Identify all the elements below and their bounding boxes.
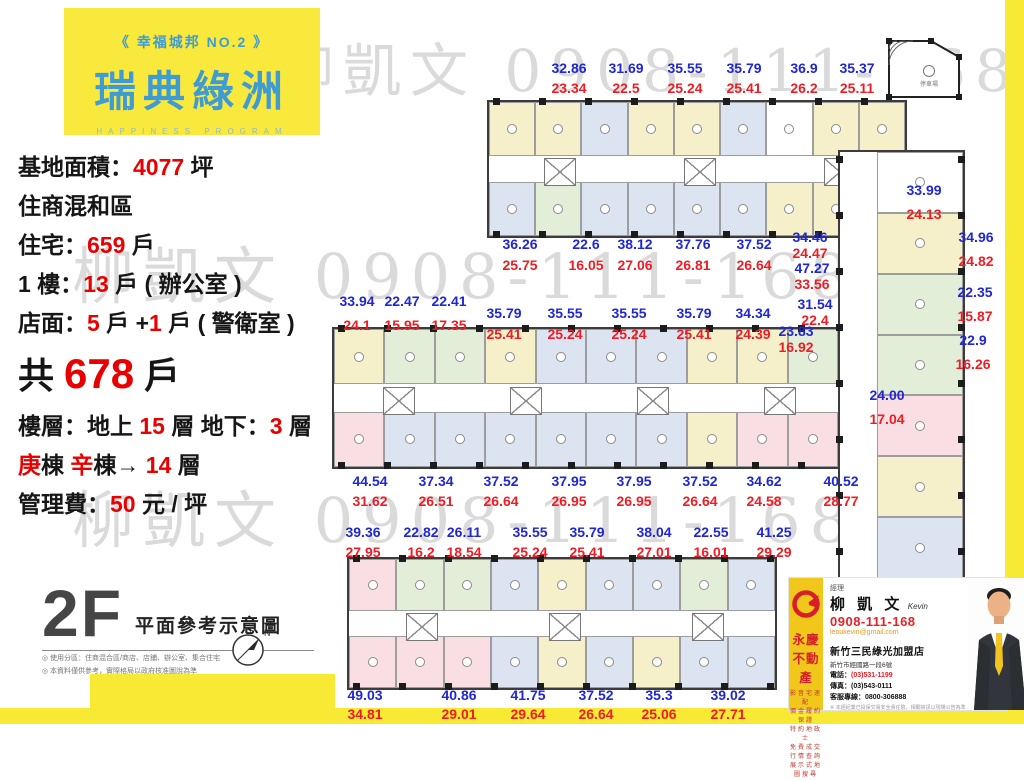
unit-area-label: 44.5431.62 [352, 474, 387, 509]
floor-plan-unit [720, 182, 766, 236]
floor-plan-unit [687, 412, 737, 467]
structural-column [539, 231, 546, 238]
unit-area-label: 49.0334.81 [347, 688, 382, 722]
floor-plan-unit [538, 636, 585, 688]
unit-number-mark [692, 124, 702, 134]
unit-area-label: 37.9526.95 [551, 474, 586, 509]
unit-number-mark [556, 352, 566, 362]
structural-column [861, 98, 868, 105]
unit-area-label: 35.5525.24 [547, 306, 582, 342]
floor-plan-unit [633, 636, 680, 688]
structural-column [585, 98, 592, 105]
unit-number-mark [746, 657, 756, 667]
structural-column [629, 683, 636, 690]
structural-column [384, 462, 391, 469]
logo-tagline: 《 幸福城邦 NO.2 》 [64, 32, 320, 52]
floor-plan-unit [674, 182, 720, 236]
unit-number-mark [699, 657, 709, 667]
store-tel: 電話：(03)531-1199 [830, 670, 966, 680]
unit-area-label: 35.7925.41 [726, 61, 761, 96]
structural-column [476, 462, 483, 469]
unit-area-label: 36.926.2 [790, 61, 817, 96]
unit-number-mark [505, 434, 515, 444]
structural-column [836, 436, 843, 443]
structural-column [798, 462, 805, 469]
unit-number-mark [600, 204, 610, 214]
unit-number-mark [652, 657, 662, 667]
unit-area-label: 34.6224.58 [746, 474, 781, 509]
unit-number-mark [604, 580, 614, 590]
frame-bottom-left [90, 674, 335, 724]
unit-area-label: 24.0017.04 [869, 388, 904, 427]
unit-number-mark [738, 124, 748, 134]
unit-area-label: 33.9424.1 [339, 294, 374, 333]
unit-area-label: 35.3725.11 [839, 61, 874, 96]
unit-number-mark [707, 434, 717, 444]
unit-area-label: 37.5226.64 [483, 474, 518, 509]
brand-feature: 展示式地圖搜尋 [789, 762, 823, 780]
info-line: 1 樓：13 戶 ( 辦公室 ) [18, 265, 312, 304]
structural-column [338, 462, 345, 469]
floor-plan-unit [384, 329, 434, 384]
parking-label: 停車場 [920, 80, 938, 88]
logo-title: 瑞典綠洲 [64, 58, 320, 119]
info-line: 樓層：地上 15 層 地下：3 層 [18, 407, 312, 446]
structural-column [660, 462, 667, 469]
unit-number-mark [556, 434, 566, 444]
unit-area-label: 22.916.26 [955, 333, 990, 372]
unit-area-label: 34.4624.47 [792, 230, 827, 261]
floor-note: ◎ 使用分區：住商混合區/商店、店鋪、辦公室、集合住宅 [42, 654, 332, 664]
unit-area-label: 38.0427.01 [636, 525, 671, 560]
unit-number-mark [557, 657, 567, 667]
unit-area-label: 32.8623.34 [551, 61, 586, 96]
info-line: 庚棟 辛棟→ 14 層 [18, 446, 312, 485]
unit-number-mark [657, 352, 667, 362]
agent-photo [968, 578, 1024, 710]
structural-column [836, 380, 843, 387]
floor-plan-unit [877, 274, 963, 335]
unit-area-label: 41.7529.64 [510, 688, 545, 722]
unit-area-label: 33.9924.13 [906, 183, 941, 222]
info-line: 管理費：50 元 / 坪 [18, 485, 312, 524]
floor-plan-unit [535, 182, 581, 236]
floor-plan-unit [581, 102, 627, 156]
unit-number-mark [877, 124, 887, 134]
floor-plan-unit [444, 559, 491, 611]
floor-plan-unit [435, 329, 485, 384]
floor-plan-unit [349, 636, 396, 688]
structural-column [958, 548, 965, 555]
structural-column [723, 231, 730, 238]
unit-number-mark [915, 360, 925, 370]
structural-column [522, 325, 529, 332]
parking-ramp-plan: 停車場 [882, 30, 964, 104]
floor-plan-unit [491, 636, 538, 688]
structural-column [491, 555, 498, 562]
structural-column [677, 98, 684, 105]
floor-plan-unit [680, 636, 727, 688]
store-fax: 傳真：(03)543-0111 [830, 681, 966, 691]
structural-column [958, 156, 965, 163]
unit-number-mark [510, 580, 520, 590]
unit-number-mark [915, 238, 925, 248]
project-logo: 《 幸福城邦 NO.2 》 瑞典綠洲 HAPPINESS PROGRAM [64, 8, 320, 135]
info-line: 基地面積：4077 坪 [18, 148, 312, 187]
unit-number-mark [455, 352, 465, 362]
structural-column [493, 231, 500, 238]
elevator-core [510, 387, 542, 415]
info-line: 住宅：659 戶 [18, 226, 312, 265]
structural-column [767, 683, 774, 690]
floor-plan-unit [720, 102, 766, 156]
unit-area-label: 37.3426.51 [418, 474, 453, 509]
unit-number-mark [657, 434, 667, 444]
structural-column [958, 212, 965, 219]
structural-column [493, 98, 500, 105]
unit-number-mark [915, 421, 925, 431]
floor-plan-unit [538, 559, 585, 611]
elevator-core [549, 613, 581, 641]
agent-name-en: Kevin [908, 602, 928, 611]
compass-north-label: N [264, 628, 271, 638]
structural-column [660, 325, 667, 332]
unit-area-label: 35.5525.24 [611, 306, 646, 342]
unit-area-label: 35.7925.41 [486, 306, 521, 342]
unit-area-label: 39.0227.71 [710, 688, 745, 722]
yongching-logo-icon [789, 587, 823, 621]
unit-number-mark [738, 204, 748, 214]
unit-number-mark [692, 204, 702, 214]
unit-area-label: 22.5516.01 [693, 525, 728, 560]
unit-area-label: 35.5525.24 [667, 61, 702, 96]
unit-number-mark [553, 124, 563, 134]
unit-area-label: 40.5228.77 [823, 474, 858, 509]
unit-area-label: 26.1118.54 [446, 525, 481, 560]
structural-column [958, 380, 965, 387]
floor-plan-unit [737, 412, 787, 467]
unit-number-mark [757, 352, 767, 362]
unit-area-label: 35.5525.24 [512, 525, 547, 560]
floor-number: 2F [42, 582, 123, 644]
floor-label-block: 2F 平面參考示意圖 ◎ 使用分區：住商混合區/商店、店鋪、辦公室、集合住宅◎ … [42, 582, 332, 677]
floor-plan-unit [334, 329, 384, 384]
unit-area-label: 37.5226.64 [682, 474, 717, 509]
structural-column [723, 98, 730, 105]
structural-column [815, 98, 822, 105]
brand-feature: 特約地政士 [789, 726, 823, 744]
unit-number-mark [600, 124, 610, 134]
structural-column [539, 98, 546, 105]
agent-business-card: 永慶不動產 影音宅速配價金履約保證特約地政士免費成交行情查詢展示式地圖搜尋 經理… [788, 577, 1008, 711]
structural-column [675, 555, 682, 562]
structural-column [631, 98, 638, 105]
agent-name: 柳 凱 文 [830, 596, 903, 613]
unit-number-mark [553, 204, 563, 214]
agent-photo-image [968, 578, 1024, 710]
structural-column [836, 268, 843, 275]
unit-area-label: 37.7626.81 [675, 237, 710, 273]
structural-column [629, 555, 636, 562]
unit-area-label: 35.7925.41 [569, 525, 604, 560]
unit-number-mark [606, 352, 616, 362]
info-line: 住商混和區 [18, 187, 312, 226]
unit-number-mark [557, 580, 567, 590]
brand-panel: 永慶不動產 影音宅速配價金履約保證特約地政士免費成交行情查詢展示式地圖搜尋 [789, 578, 823, 710]
structural-column [614, 462, 621, 469]
unit-number-mark [757, 434, 767, 444]
structural-column [958, 268, 965, 275]
unit-area-label: 31.6922.5 [608, 61, 643, 96]
unit-area-label: 41.2529.29 [756, 525, 791, 560]
card-fineprint: ※ 本經紀業已投保交易安全責任險，相關資訊以現場公告為準 [830, 704, 966, 711]
floor-plan-unit [536, 412, 586, 467]
elevator-core [383, 387, 415, 415]
structural-column [491, 683, 498, 690]
floor-plan-unit [444, 636, 491, 688]
elevator-core [684, 158, 716, 186]
structural-column [836, 548, 843, 555]
floor-plan [347, 557, 777, 690]
unit-number-mark [784, 204, 794, 214]
unit-number-mark [510, 657, 520, 667]
divider [42, 650, 314, 651]
store-name: 新竹三民綠光加盟店 [830, 643, 966, 658]
unit-number-mark [462, 580, 472, 590]
floor-plan-unit [766, 102, 812, 156]
floor-plan-unit [581, 182, 627, 236]
unit-number-mark [354, 352, 364, 362]
structural-column [568, 462, 575, 469]
unit-number-mark [746, 580, 756, 590]
unit-number-mark [606, 434, 616, 444]
unit-area-label: 47.2733.56 [794, 261, 829, 292]
compass-icon: N [228, 626, 272, 670]
unit-number-mark [507, 124, 517, 134]
floor-plan-unit [349, 559, 396, 611]
structural-column [836, 324, 843, 331]
store-address: 新竹市經國路一段6號 [830, 659, 966, 669]
floor-plan-unit [396, 636, 443, 688]
floor-plan-unit [680, 559, 727, 611]
elevator-core [637, 387, 669, 415]
floor-plan-unit [489, 102, 535, 156]
unit-number-mark [455, 434, 465, 444]
floor-plan [838, 150, 965, 580]
floor-plan-unit [586, 636, 633, 688]
floor-plan-unit [435, 412, 485, 467]
info-line: 店面：5 戶 +1 戶 ( 警衛室 ) [18, 304, 312, 343]
structural-column [522, 462, 529, 469]
unit-number-mark [507, 204, 517, 214]
floor-plan-unit [535, 102, 581, 156]
info-line: 共 678 戶 [18, 343, 312, 407]
floor-plan-unit [674, 102, 720, 156]
logo-subtitle: HAPPINESS PROGRAM [64, 127, 320, 136]
elevator-core [406, 613, 438, 641]
store-hotline: 客服專線：0800-306888 [830, 692, 966, 702]
floor-plan-unit [384, 412, 434, 467]
floor-plan-unit [633, 559, 680, 611]
floor-plan-unit [813, 102, 859, 156]
unit-area-label: 38.1227.06 [617, 237, 652, 273]
unit-area-label: 22.616.05 [568, 237, 603, 273]
structural-column [476, 325, 483, 332]
elevator-core [764, 387, 796, 415]
brand-feature: 免費成交行情查詢 [789, 744, 823, 762]
unit-number-mark [831, 124, 841, 134]
unit-number-mark [354, 434, 364, 444]
agent-phone: 0908-111-168 [830, 614, 966, 629]
floor-plan-unit [877, 456, 963, 517]
floor-plan-unit [396, 559, 443, 611]
structural-column [958, 324, 965, 331]
unit-number-mark [415, 580, 425, 590]
structural-column [706, 462, 713, 469]
structural-column [399, 683, 406, 690]
floor-plan-unit [788, 412, 838, 467]
unit-area-label: 23.8316.92 [778, 324, 813, 355]
brand-features: 影音宅速配價金履約保證特約地政士免費成交行情查詢展示式地圖搜尋 [789, 690, 823, 780]
unit-area-label: 39.3627.95 [345, 525, 380, 560]
unit-number-mark [915, 482, 925, 492]
agent-email: leoukevin@gmail.com [830, 629, 966, 636]
structural-column [958, 492, 965, 499]
unit-area-label: 37.5226.64 [578, 688, 613, 722]
unit-number-mark [784, 124, 794, 134]
unit-area-label: 35.7925.41 [676, 306, 711, 342]
unit-area-label: 36.2625.75 [502, 237, 537, 273]
unit-number-mark [505, 352, 515, 362]
unit-number-mark [652, 580, 662, 590]
unit-area-label: 37.5226.64 [736, 237, 771, 273]
brand-feature: 價金履約保證 [789, 708, 823, 726]
structural-column [958, 436, 965, 443]
unit-number-mark [415, 657, 425, 667]
unit-area-label: 37.9526.95 [616, 474, 651, 509]
unit-number-mark [604, 657, 614, 667]
floor-plan-unit [766, 182, 812, 236]
page: { "logo":{"tagline":"《 幸福城邦 NO.2 》","tit… [0, 0, 1024, 724]
brand-name: 永慶不動產 [789, 629, 823, 686]
unit-number-mark [368, 657, 378, 667]
floor-plan-unit [491, 559, 538, 611]
unit-area-label: 22.8216.2 [403, 525, 438, 560]
floor-plan-unit [636, 412, 686, 467]
unit-number-mark [462, 657, 472, 667]
unit-area-label: 34.9624.82 [958, 230, 993, 269]
unit-number-mark [646, 124, 656, 134]
floor-plan-unit [586, 412, 636, 467]
structural-column [430, 462, 437, 469]
elevator-core [544, 158, 576, 186]
floor-plan [332, 327, 840, 469]
structural-column [836, 156, 843, 163]
unit-number-mark [368, 580, 378, 590]
structural-column [769, 98, 776, 105]
unit-number-mark [915, 299, 925, 309]
floor-plan-unit [334, 412, 384, 467]
floor-plan-unit [728, 636, 775, 688]
unit-area-label: 40.8629.01 [441, 688, 476, 722]
manager-title: 經理 [830, 583, 966, 593]
unit-area-label: 22.4117.35 [431, 294, 466, 333]
floor-plan-unit [859, 102, 905, 156]
floor-plan-unit [628, 182, 674, 236]
floor-plan-unit [489, 182, 535, 236]
unit-number-mark [808, 434, 818, 444]
unit-area-label: 22.4715.95 [384, 294, 419, 333]
unit-number-mark [699, 580, 709, 590]
floor-plan-unit [485, 412, 535, 467]
floor-plan-unit [586, 559, 633, 611]
unit-number-mark [707, 352, 717, 362]
floor-plan-unit [877, 517, 963, 578]
structural-column [836, 212, 843, 219]
structural-column [752, 462, 759, 469]
unit-area-label: 35.325.06 [641, 688, 676, 722]
project-info-block: 基地面積：4077 坪住商混和區住宅：659 戶1 樓：13 戶 ( 辦公室 )… [18, 148, 312, 524]
unit-area-label: 34.3424.39 [735, 306, 770, 342]
floor-plan-unit [628, 102, 674, 156]
brand-feature: 影音宅速配 [789, 690, 823, 708]
floor-plan-unit [728, 559, 775, 611]
unit-number-mark [405, 434, 415, 444]
unit-area-label: 22.3515.87 [957, 285, 992, 324]
unit-number-mark [646, 204, 656, 214]
unit-number-mark [405, 352, 415, 362]
unit-number-mark [915, 543, 925, 553]
elevator-core [692, 613, 724, 641]
card-main: 經理 柳 凱 文 Kevin 0908-111-168 leoukevin@gm… [823, 578, 968, 710]
